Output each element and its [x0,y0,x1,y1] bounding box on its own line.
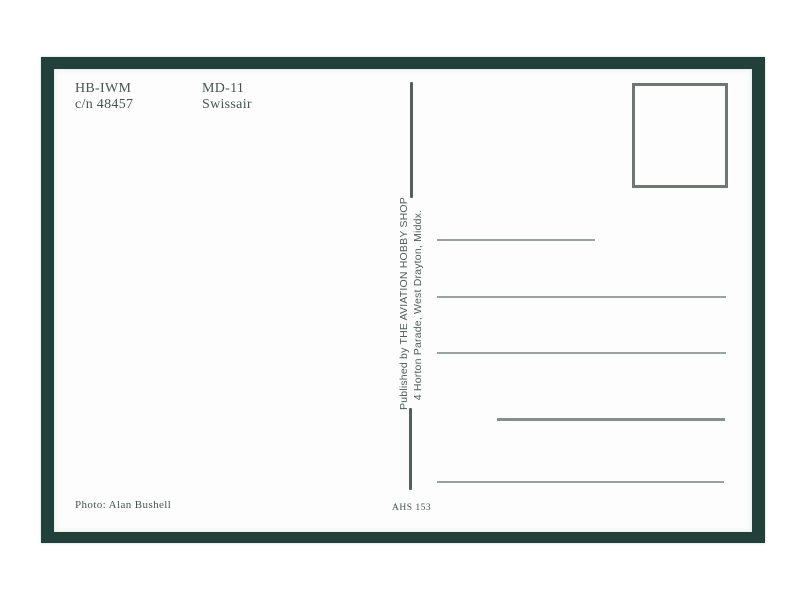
postcard-back-scan: HB-IWM c/n 48457 MD-11 Swissair Publishe… [0,0,800,600]
registration-block: HB-IWM c/n 48457 [75,81,133,112]
catalog-number: AHS 153 [392,503,431,513]
construction-number: c/n 48457 [75,97,133,113]
aircraft-registration: HB-IWM [75,81,133,97]
center-divider-top-line [410,82,413,198]
publisher-address-line: 4 Horton Parade, West Drayton, Middx. [411,200,425,410]
address-line-4 [497,418,725,421]
stamp-box [632,83,728,188]
aircraft-type: MD-11 [202,81,252,97]
postcard-surface: HB-IWM c/n 48457 MD-11 Swissair Publishe… [54,69,752,532]
address-line-5 [437,481,724,483]
airline-name: Swissair [202,97,252,113]
publisher-name-line: Published by THE AVIATION HOBBY SHOP [397,200,411,410]
photo-credit: Photo: Alan Bushell [75,499,171,511]
center-divider-bottom-line [409,408,412,490]
postcard-green-border: HB-IWM c/n 48457 MD-11 Swissair Publishe… [41,57,765,543]
aircraft-type-block: MD-11 Swissair [202,81,252,112]
address-line-1 [437,239,595,241]
address-line-2 [437,296,726,298]
address-line-3 [437,352,726,354]
publisher-imprint: Published by THE AVIATION HOBBY SHOP 4 H… [397,200,427,410]
